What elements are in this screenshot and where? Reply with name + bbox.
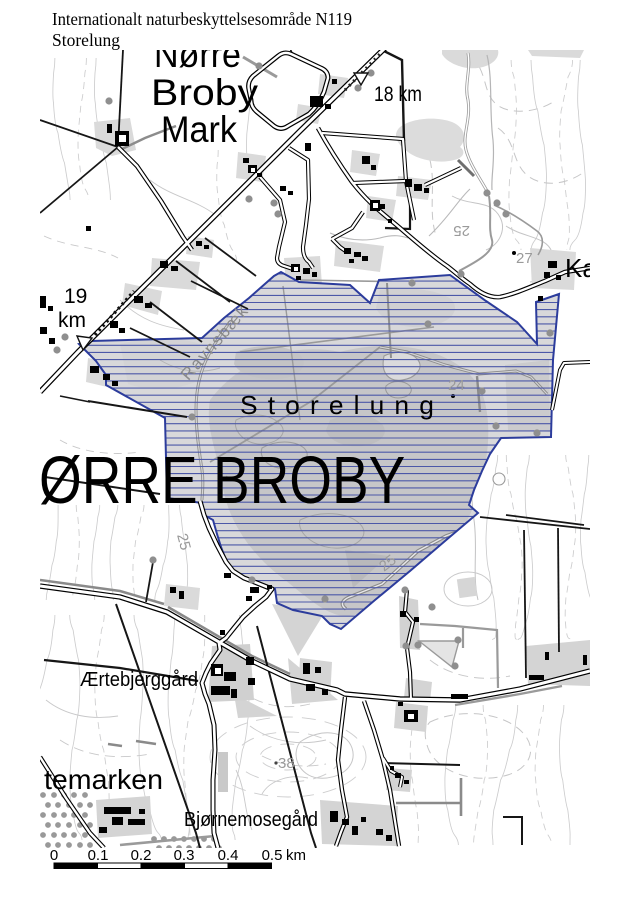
svg-text:19: 19 bbox=[64, 285, 87, 308]
svg-text:Mark: Mark bbox=[161, 109, 237, 150]
svg-text:18 km: 18 km bbox=[374, 82, 422, 106]
svg-text:Bjørnemosegård: Bjørnemosegård bbox=[184, 809, 318, 831]
svg-text:38: 38 bbox=[278, 755, 295, 772]
svg-text:temarken: temarken bbox=[44, 764, 163, 795]
svg-text:0.1: 0.1 bbox=[88, 847, 109, 864]
svg-text:0.2: 0.2 bbox=[131, 847, 152, 864]
svg-text:27: 27 bbox=[516, 250, 533, 267]
svg-text:ØRRE BROBY: ØRRE BROBY bbox=[39, 443, 405, 517]
svg-text:km: km bbox=[286, 847, 306, 864]
svg-text:0: 0 bbox=[50, 847, 58, 864]
svg-text:km: km bbox=[58, 309, 86, 332]
svg-text:0.5: 0.5 bbox=[262, 847, 283, 864]
svg-text:24: 24 bbox=[448, 377, 465, 394]
svg-text:0.4: 0.4 bbox=[218, 847, 239, 864]
svg-text:25: 25 bbox=[453, 222, 470, 239]
svg-text:Storelung: Storelung bbox=[240, 390, 444, 420]
svg-text:Ærtebjerggård: Ærtebjerggård bbox=[80, 669, 198, 691]
svg-text:Internationalt naturbeskyttels: Internationalt naturbeskyttelsesområde N… bbox=[52, 9, 352, 29]
svg-text:0.3: 0.3 bbox=[174, 847, 195, 864]
svg-text:Storelung: Storelung bbox=[52, 30, 120, 50]
svg-text:Broby: Broby bbox=[151, 72, 259, 113]
